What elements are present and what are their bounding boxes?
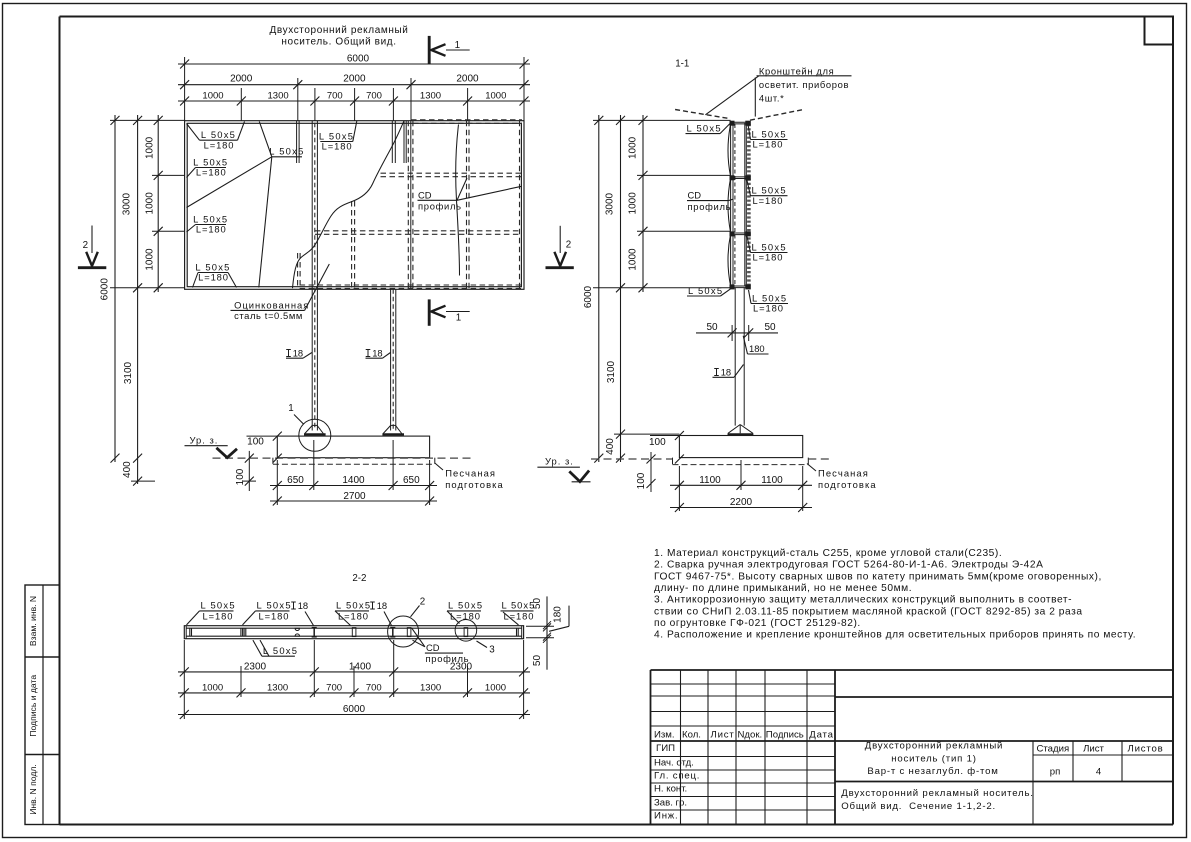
svg-text:18: 18 [721, 367, 731, 378]
svg-text:650: 650 [287, 475, 304, 486]
svg-text:подготовка: подготовка [818, 479, 877, 490]
svg-text:1000: 1000 [628, 248, 639, 271]
svg-text:Подпись: Подпись [766, 730, 804, 741]
svg-text:L=180: L=180 [322, 141, 353, 152]
svg-text:3100: 3100 [606, 360, 617, 383]
svg-text:4шт.*: 4шт.* [759, 93, 785, 104]
svg-text:L 50x5: L 50x5 [257, 600, 292, 611]
svg-text:Кронштейн для: Кронштейн для [759, 65, 834, 76]
svg-text:2: 2 [566, 239, 571, 250]
svg-text:2300: 2300 [244, 661, 267, 672]
svg-text:2: 2 [83, 240, 88, 251]
svg-text:длину- по длине примыканий, но: длину- по длине примыканий, но не менее … [654, 583, 912, 594]
svg-text:1000: 1000 [628, 136, 639, 159]
svg-text:Двухсторонний рекламный: Двухсторонний рекламный [865, 740, 1003, 751]
svg-text:L 50x5: L 50x5 [752, 292, 787, 303]
svg-text:6000: 6000 [343, 704, 366, 715]
svg-text:1000: 1000 [485, 682, 506, 693]
svg-text:6000: 6000 [347, 54, 370, 65]
svg-text:400: 400 [605, 438, 616, 455]
svg-text:3. Антикоррозионную защиту мет: 3. Антикоррозионную защиту металлических… [654, 595, 1072, 606]
svg-text:Стадия: Стадия [1036, 744, 1069, 755]
svg-text:2-2: 2-2 [352, 573, 366, 584]
svg-text:700: 700 [366, 90, 382, 101]
svg-text:L=180: L=180 [204, 139, 235, 150]
svg-text:18: 18 [293, 348, 303, 359]
svg-text:L 50x5: L 50x5 [193, 156, 228, 167]
svg-text:CD: CD [688, 190, 702, 201]
svg-text:L=180: L=180 [198, 272, 229, 283]
svg-text:Общий вид. Сечение 1-1,2-2.: Общий вид. Сечение 1-1,2-2. [841, 801, 996, 812]
svg-text:1000: 1000 [144, 192, 155, 215]
svg-text:Подпись и дата: Подпись и дата [28, 675, 38, 737]
svg-text:Двухсторонний рекламный носите: Двухсторонний рекламный носитель. [841, 788, 1033, 799]
svg-text:ГИП: ГИП [656, 743, 675, 754]
svg-text:1300: 1300 [268, 90, 289, 101]
svg-text:Листов: Листов [1128, 744, 1164, 755]
svg-text:L 50x5: L 50x5 [201, 129, 236, 140]
svg-text:ГОСТ 9467-75*. Высоту сварных: ГОСТ 9467-75*. Высоту сварных швов по ка… [654, 571, 1102, 582]
svg-text:1000: 1000 [144, 136, 155, 159]
svg-text:100: 100 [636, 472, 647, 489]
svg-text:L=180: L=180 [753, 195, 784, 206]
svg-text:Ур. з.: Ур. з. [190, 435, 219, 446]
svg-text:1300: 1300 [420, 682, 441, 693]
svg-text:Инж.: Инж. [654, 811, 678, 822]
svg-text:50: 50 [706, 322, 718, 333]
svg-text:400: 400 [122, 461, 133, 478]
svg-text:Лист: Лист [1083, 744, 1104, 755]
svg-text:L 50x5: L 50x5 [687, 122, 722, 133]
svg-text:Nдок.: Nдок. [738, 730, 763, 741]
svg-text:L 50x5: L 50x5 [752, 185, 787, 196]
svg-text:L 50x5: L 50x5 [195, 261, 230, 272]
svg-text:2200: 2200 [730, 497, 753, 508]
svg-text:осветит. приборов: осветит. приборов [759, 79, 849, 90]
svg-text:подготовка: подготовка [445, 479, 504, 490]
svg-text:100: 100 [247, 436, 264, 447]
svg-text:Гл. спец.: Гл. спец. [654, 771, 700, 782]
svg-text:1000: 1000 [628, 192, 639, 215]
svg-text:1400: 1400 [349, 661, 372, 672]
svg-text:L=180: L=180 [753, 303, 784, 314]
svg-text:L 50x5: L 50x5 [752, 128, 787, 139]
svg-text:L 50x5: L 50x5 [448, 600, 483, 611]
svg-text:100: 100 [649, 437, 666, 448]
svg-text:3000: 3000 [604, 192, 615, 215]
svg-text:L=180: L=180 [753, 252, 784, 263]
svg-text:Инв. N подл.: Инв. N подл. [28, 764, 38, 815]
svg-text:1-1: 1-1 [675, 59, 689, 70]
svg-text:Изм.: Изм. [654, 730, 675, 741]
svg-text:3100: 3100 [123, 361, 134, 384]
svg-text:18: 18 [298, 600, 308, 611]
svg-text:650: 650 [403, 475, 420, 486]
svg-text:Оцинкованная: Оцинкованная [234, 300, 309, 311]
svg-text:50: 50 [532, 598, 543, 610]
svg-text:Ур. з.: Ур. з. [545, 456, 574, 467]
svg-text:Зав. гр.: Зав. гр. [654, 798, 687, 809]
svg-text:1: 1 [456, 313, 461, 324]
svg-text:2. Сварка ручная электродугова: 2. Сварка ручная электродуговая ГОСТ 526… [654, 560, 1043, 571]
svg-text:2300: 2300 [450, 661, 473, 672]
svg-text:CD: CD [418, 189, 432, 200]
svg-text:1: 1 [288, 403, 293, 414]
svg-text:1000: 1000 [485, 90, 506, 101]
svg-text:L=180: L=180 [196, 167, 227, 178]
svg-text:L 50x5: L 50x5 [336, 600, 371, 611]
svg-text:2000: 2000 [343, 74, 366, 85]
svg-text:100: 100 [235, 468, 246, 485]
svg-text:1100: 1100 [699, 475, 721, 486]
svg-text:700: 700 [327, 90, 343, 101]
svg-text:носитель (тип 1): носитель (тип 1) [891, 753, 977, 764]
svg-text:Н. конт.: Н. конт. [654, 784, 687, 795]
svg-text:Взам. инв. N: Взам. инв. N [28, 596, 38, 646]
svg-text:носитель. Общий вид.: носитель. Общий вид. [281, 36, 396, 48]
svg-text:по огрунтовке ГФ-021 (ГОСТ 251: по огрунтовке ГФ-021 (ГОСТ 25129-82). [654, 618, 861, 629]
svg-text:1000: 1000 [144, 248, 155, 271]
svg-text:Дата: Дата [809, 730, 833, 741]
svg-text:1000: 1000 [202, 90, 223, 101]
svg-text:Лист: Лист [711, 730, 735, 741]
svg-text:L 50x5: L 50x5 [319, 130, 354, 141]
svg-text:1300: 1300 [420, 90, 441, 101]
svg-text:180: 180 [749, 343, 765, 354]
svg-text:2000: 2000 [230, 74, 253, 85]
svg-text:Вар-т с незаглубл. ф-том: Вар-т с незаглубл. ф-том [867, 766, 998, 777]
svg-text:1100: 1100 [761, 475, 783, 486]
svg-text:50: 50 [532, 655, 543, 667]
svg-text:L=180: L=180 [203, 610, 234, 621]
svg-text:CD: CD [426, 642, 440, 653]
svg-text:50: 50 [764, 322, 776, 333]
svg-text:1: 1 [455, 40, 460, 51]
svg-text:700: 700 [366, 682, 382, 693]
svg-text:Нач. отд.: Нач. отд. [654, 758, 694, 769]
svg-text:L 50x5: L 50x5 [269, 146, 304, 157]
svg-text:Песчаная: Песчаная [818, 468, 869, 479]
svg-text:L=180: L=180 [338, 610, 369, 621]
svg-text:L=180: L=180 [259, 610, 290, 621]
svg-text:18: 18 [377, 600, 387, 611]
svg-text:L 50x5: L 50x5 [502, 600, 536, 611]
svg-text:рп: рп [1050, 767, 1061, 778]
svg-text:3000: 3000 [122, 193, 133, 216]
svg-text:2000: 2000 [456, 74, 479, 85]
svg-text:L 50x5: L 50x5 [688, 285, 723, 296]
svg-text:Кол.: Кол. [682, 730, 701, 741]
svg-text:180: 180 [553, 606, 564, 623]
svg-text:6000: 6000 [583, 285, 594, 308]
svg-text:2700: 2700 [343, 491, 366, 502]
svg-text:4: 4 [1096, 767, 1102, 778]
svg-text:L 50x5: L 50x5 [752, 241, 787, 252]
svg-text:L=180: L=180 [753, 139, 784, 150]
svg-text:L=180: L=180 [450, 610, 481, 621]
svg-text:профиль: профиль [688, 201, 732, 212]
svg-text:3: 3 [489, 645, 495, 656]
svg-text:6000: 6000 [100, 278, 111, 301]
svg-text:2: 2 [420, 597, 425, 608]
svg-text:L 50x5: L 50x5 [201, 600, 236, 611]
svg-text:сталь t=0.5мм: сталь t=0.5мм [234, 310, 303, 321]
svg-text:ствии со СНиП 2.03.11-85 покры: ствии со СНиП 2.03.11-85 покрытием масля… [654, 606, 1083, 617]
svg-text:4. Расположение и крепление кр: 4. Расположение и крепление кронштейнов … [654, 629, 1136, 641]
svg-text:L 50x5: L 50x5 [193, 213, 228, 224]
svg-text:1400: 1400 [342, 475, 365, 486]
svg-text:L=180: L=180 [196, 224, 227, 235]
svg-text:700: 700 [326, 682, 342, 693]
svg-text:Двухсторонний рекламный: Двухсторонний рекламный [270, 25, 409, 36]
svg-text:профиль: профиль [418, 201, 462, 212]
svg-text:Песчаная: Песчаная [445, 467, 496, 478]
svg-text:18: 18 [372, 348, 382, 359]
svg-text:1. Материал конструкций-сталь: 1. Материал конструкций-сталь С255, кром… [654, 548, 1002, 559]
svg-text:1000: 1000 [202, 682, 223, 693]
svg-text:1300: 1300 [267, 682, 288, 693]
